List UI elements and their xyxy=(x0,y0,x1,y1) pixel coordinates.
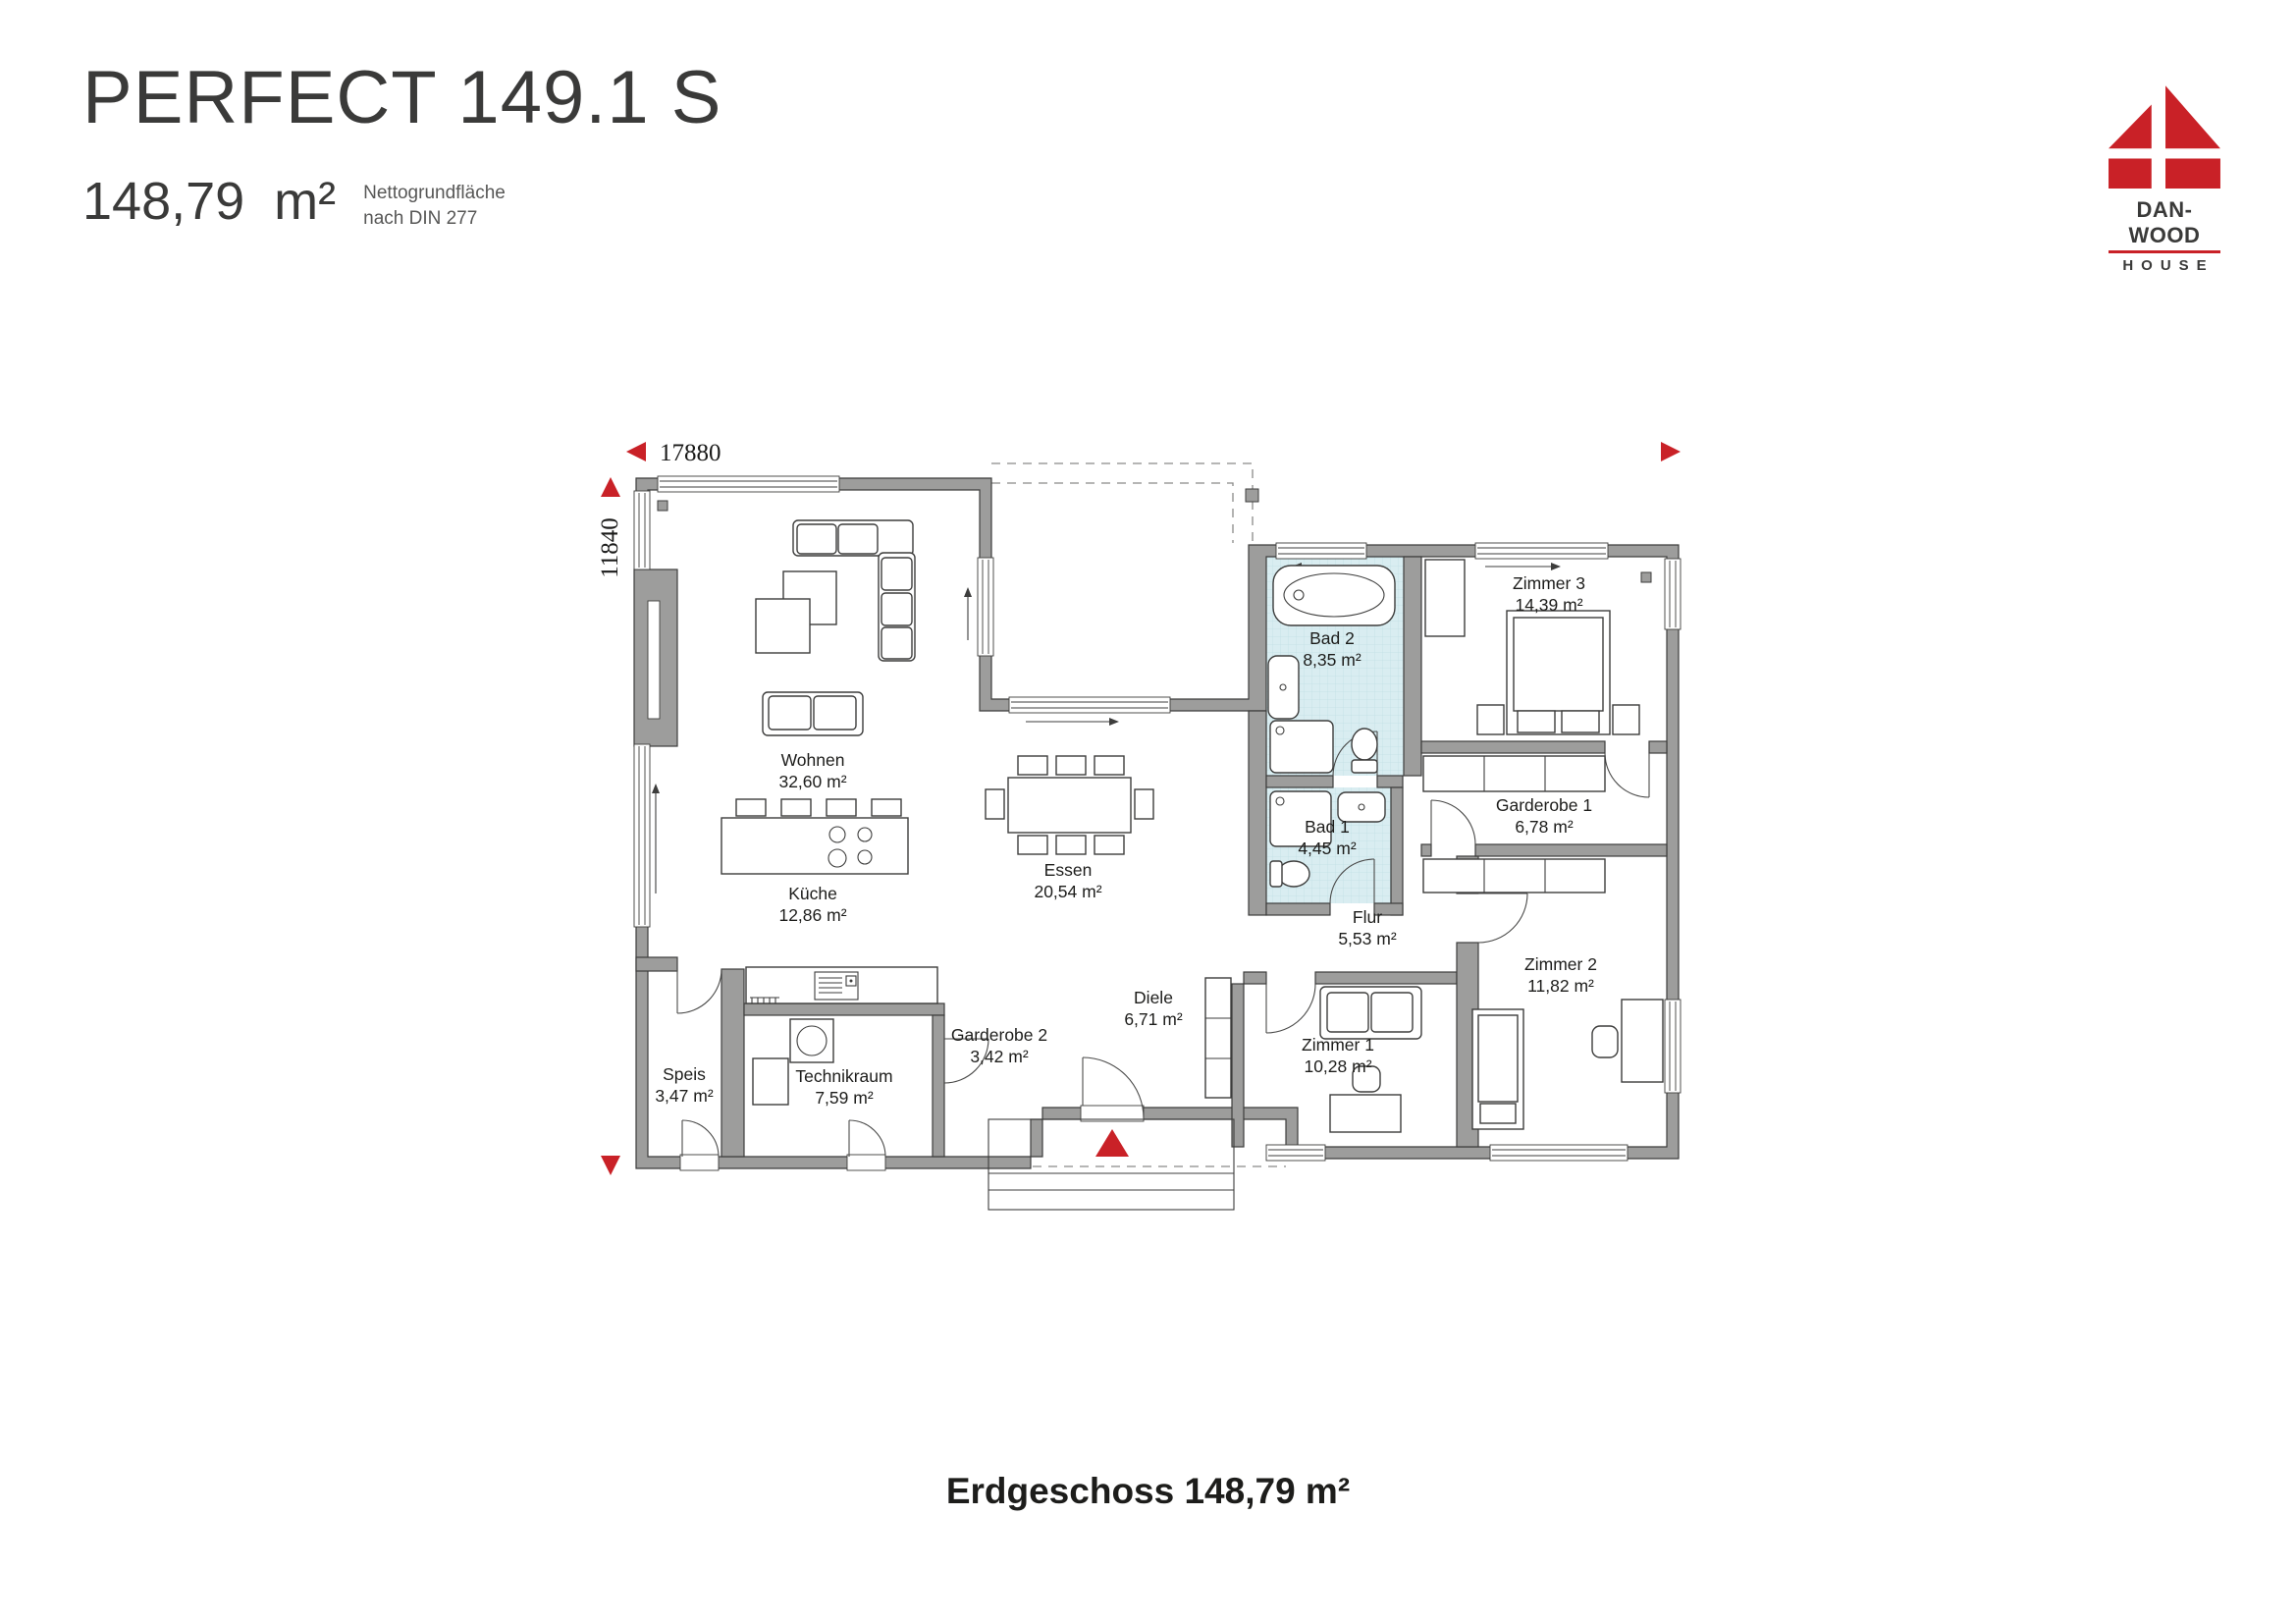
logo-brand-text: DAN-WOOD xyxy=(2109,197,2220,248)
logo-word-text: HOUSE xyxy=(2109,257,2228,274)
net-area-note-line2: nach DIN 277 xyxy=(363,206,506,232)
technik-unit xyxy=(753,1058,788,1105)
room-label-garderobe2: Garderobe 23,42 m² xyxy=(951,1025,1047,1066)
door-technikraum-exterior xyxy=(847,1120,885,1170)
room-label-diele: Diele6,71 m² xyxy=(1124,988,1182,1029)
window-kitchen-west-slider xyxy=(634,744,660,927)
danwood-logo: DAN-WOOD HOUSE xyxy=(2109,73,2220,274)
room-label-garderobe1: Garderobe 16,78 m² xyxy=(1496,795,1592,837)
page-title: PERFECT 149.1 S xyxy=(82,61,721,135)
entrance-marker-icon xyxy=(1095,1129,1129,1157)
window-zimmer2-south xyxy=(1490,1145,1628,1161)
zimmer3-bed xyxy=(1477,611,1639,734)
marker-post-zimmer3-icon xyxy=(1641,572,1651,582)
kitchen-counter xyxy=(746,967,937,1003)
dimension-depth: 11840 xyxy=(597,477,623,1175)
dining-table xyxy=(986,756,1153,854)
zimmer3-wardrobe xyxy=(1425,560,1465,636)
dim-width-label: 17880 xyxy=(660,440,721,466)
floor-plan: 17880 11840 Wohnen32,60 m² Küche12,86 m²… xyxy=(589,432,1728,1252)
door-speis-exterior xyxy=(680,1120,719,1170)
dim-arrow-right-icon xyxy=(1661,442,1681,461)
bad1-toilet xyxy=(1270,861,1309,887)
room-label-zimmer1: Zimmer 110,28 m² xyxy=(1302,1035,1374,1076)
kitchen-island xyxy=(721,799,908,874)
marker-post-living-icon xyxy=(658,501,667,511)
window-top-living xyxy=(658,476,839,492)
room-label-wohnen: Wohnen32,60 m² xyxy=(778,750,846,791)
zimmer1-sofa xyxy=(1320,987,1421,1039)
two-seat-sofa xyxy=(763,692,863,735)
terrace-post-icon xyxy=(1246,489,1258,502)
door-zimmer2 xyxy=(1478,893,1527,943)
window-essen-terrace-slider xyxy=(1009,697,1170,726)
window-zimmer3-east xyxy=(1665,559,1681,629)
room-label-technikraum: Technikraum7,59 m² xyxy=(795,1066,892,1108)
net-area-note-line1: Nettogrundfläche xyxy=(363,181,506,206)
washing-machine xyxy=(790,1019,833,1062)
room-label-zimmer2: Zimmer 211,82 m² xyxy=(1524,954,1597,996)
door-speis xyxy=(677,969,721,1013)
room-label-kueche: Küche12,86 m² xyxy=(778,884,846,925)
dim-arrow-up-icon xyxy=(601,477,620,497)
net-area-unit: m² xyxy=(274,175,336,228)
zimmer1-desk xyxy=(1330,1066,1401,1132)
zimmer2-bed xyxy=(1472,1009,1523,1129)
coffee-tables xyxy=(756,571,836,653)
door-zimmer1 xyxy=(1266,984,1315,1033)
bad2-shower xyxy=(1270,721,1333,773)
diele-closet xyxy=(1205,978,1231,1098)
door-flur-garderobe1 xyxy=(1431,800,1475,844)
bathtub xyxy=(1273,566,1395,625)
door-entrance xyxy=(1081,1057,1144,1121)
dimension-width: 17880 xyxy=(626,440,1681,466)
room-label-speis: Speis3,47 m² xyxy=(655,1064,713,1106)
net-area-value: 148,79 xyxy=(82,175,244,228)
net-area-note: Nettogrundfläche nach DIN 277 xyxy=(363,175,506,231)
window-living-west xyxy=(634,491,650,569)
area-summary: 148,79 m² Nettogrundfläche nach DIN 277 xyxy=(82,175,506,231)
window-zimmer3 xyxy=(1475,543,1608,570)
logo-divider xyxy=(2109,250,2220,253)
dim-arrow-left-icon xyxy=(626,442,646,461)
dim-depth-label: 11840 xyxy=(597,517,623,578)
window-living-terrace-slider xyxy=(964,558,993,656)
title-block: PERFECT 149.1 S xyxy=(82,61,721,135)
bad2-toilet xyxy=(1352,729,1377,773)
house-logo-icon xyxy=(2109,73,2220,189)
room-label-zimmer3: Zimmer 314,39 m² xyxy=(1513,573,1585,615)
door-zimmer3-garderobe1 xyxy=(1605,753,1649,797)
bad2-washbasin xyxy=(1268,656,1299,719)
window-zimmer2-east xyxy=(1665,1000,1681,1093)
dim-arrow-down-icon xyxy=(601,1156,620,1175)
room-label-essen: Essen20,54 m² xyxy=(1034,860,1101,901)
floor-summary: Erdgeschoss 148,79 m² xyxy=(0,1471,2296,1512)
zimmer2-desk xyxy=(1592,1000,1663,1082)
window-zimmer1-south xyxy=(1266,1145,1325,1161)
slit-window xyxy=(648,601,660,719)
